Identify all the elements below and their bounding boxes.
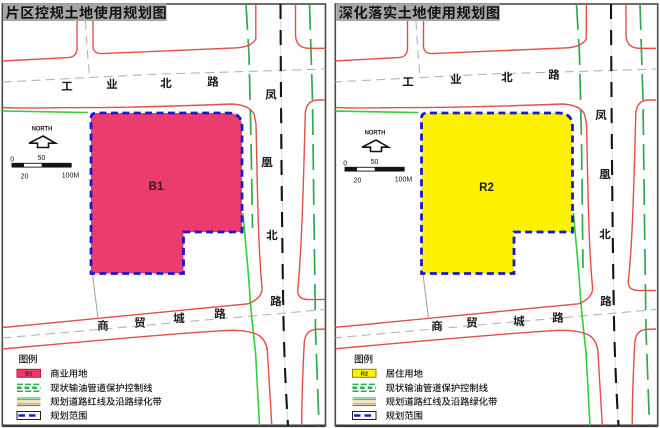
svg-text:50: 50 — [371, 159, 379, 166]
svg-text:0: 0 — [10, 157, 14, 164]
svg-text:20: 20 — [21, 174, 29, 181]
svg-text:0: 0 — [343, 161, 347, 168]
svg-text:100M: 100M — [395, 177, 413, 184]
svg-text:R2: R2 — [479, 182, 494, 194]
svg-text:20: 20 — [354, 178, 362, 185]
svg-text:B1: B1 — [25, 372, 33, 378]
svg-text:B1: B1 — [149, 181, 164, 193]
svg-text:R2: R2 — [361, 372, 368, 378]
svg-text:NORTH: NORTH — [32, 126, 53, 133]
svg-text:50: 50 — [38, 155, 46, 162]
svg-text:NORTH: NORTH — [365, 130, 386, 137]
svg-text:100M: 100M — [62, 173, 80, 180]
